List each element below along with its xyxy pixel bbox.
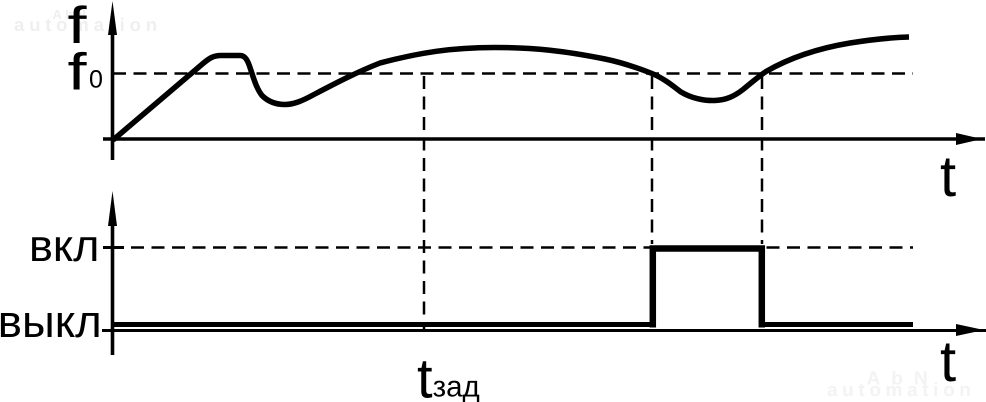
svg-text:t: t	[940, 144, 956, 209]
svg-text:0: 0	[89, 66, 103, 94]
svg-text:f: f	[68, 44, 88, 102]
svg-text:t: t	[940, 329, 956, 394]
svg-text:вкл: вкл	[29, 220, 99, 271]
svg-text:automation: automation	[14, 14, 162, 35]
svg-text:выкл: выкл	[0, 296, 102, 347]
